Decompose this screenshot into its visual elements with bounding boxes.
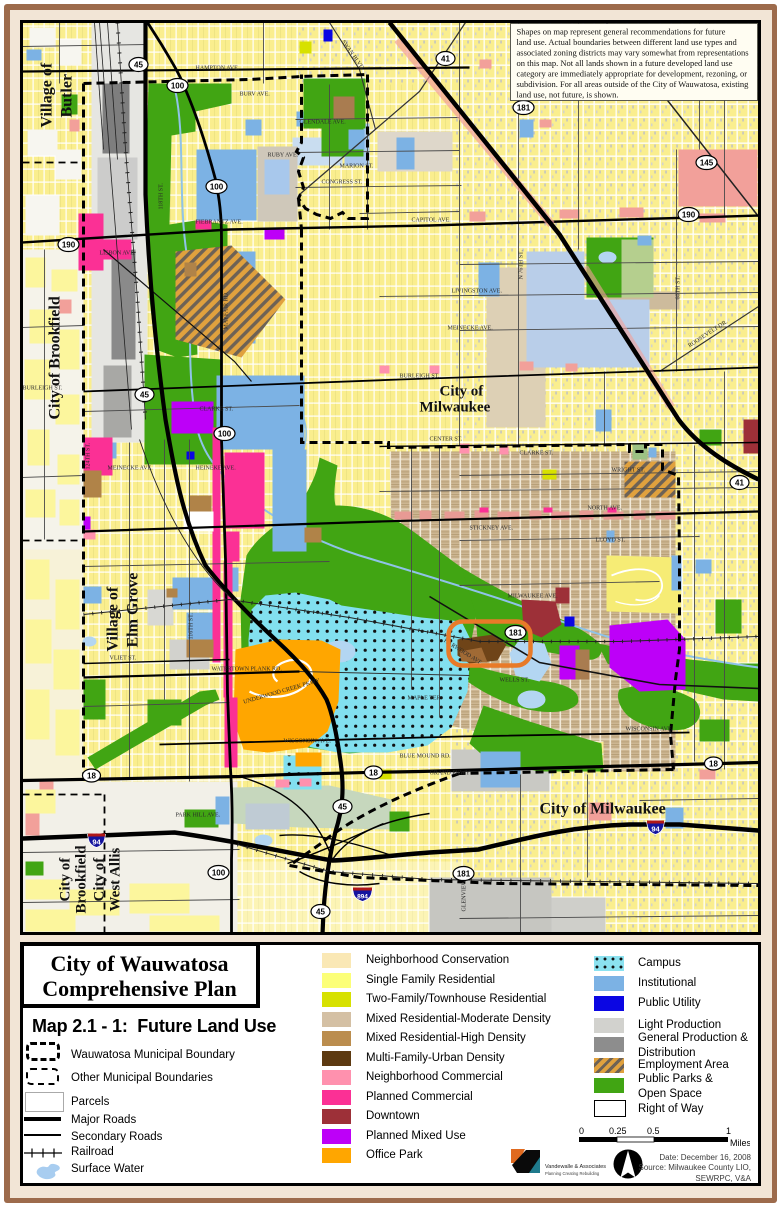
svg-text:GLENVIEW: GLENVIEW	[462, 880, 468, 912]
svg-text:MAYFAIR RD.: MAYFAIR RD.	[224, 291, 230, 330]
svg-text:GLENDALE AVE.: GLENDALE AVE.	[300, 120, 347, 126]
svg-text:STICKNEY AVE.: STICKNEY AVE.	[470, 526, 514, 532]
svg-text:100: 100	[212, 869, 226, 878]
svg-text:subdivision. For all areas out: subdivision. For all areas outside of th…	[517, 79, 750, 89]
svg-text:1: 1	[726, 1126, 731, 1136]
svg-text:45: 45	[140, 391, 149, 400]
svg-text:RUBY AVE.: RUBY AVE.	[268, 153, 299, 159]
svg-text:100: 100	[171, 82, 185, 91]
svg-text:Village of: Village of	[39, 62, 56, 127]
svg-text:HEINEKE AVE.: HEINEKE AVE.	[196, 466, 237, 472]
svg-text:City of: City of	[440, 384, 485, 400]
svg-text:45: 45	[134, 61, 143, 70]
svg-text:land use, not future, is shown: land use, not future, is shown.	[517, 90, 619, 100]
svg-text:CENTER ST.: CENTER ST.	[430, 437, 463, 443]
svg-text:West Allis: West Allis	[108, 848, 124, 912]
svg-text:LLOYD ST.: LLOYD ST.	[596, 538, 626, 544]
svg-text:MARION ST.: MARION ST.	[340, 164, 374, 170]
svg-text:NORTH AVE.: NORTH AVE.	[588, 506, 623, 512]
svg-text:CAPITOL AVE.: CAPITOL AVE.	[412, 218, 452, 224]
svg-text:WRIGHT ST.: WRIGHT ST.	[612, 468, 646, 474]
svg-text:MILWAUKEE AVE.: MILWAUKEE AVE.	[508, 594, 559, 600]
svg-text:0.25: 0.25	[609, 1126, 627, 1136]
svg-text:41: 41	[441, 55, 450, 64]
svg-text:100: 100	[218, 430, 232, 439]
svg-text:116TH ST.: 116TH ST.	[189, 613, 195, 640]
svg-text:124TH ST.: 124TH ST.	[86, 442, 92, 469]
svg-text:Miles: Miles	[730, 1138, 750, 1148]
svg-text:LISBON AVE.: LISBON AVE.	[100, 251, 136, 257]
svg-text:60TH ST.: 60TH ST.	[676, 275, 682, 299]
svg-text:18: 18	[709, 760, 718, 769]
svg-text:Elm Grove: Elm Grove	[125, 573, 142, 648]
svg-text:CONGRESS ST.: CONGRESS ST.	[322, 180, 363, 186]
svg-text:94: 94	[651, 825, 660, 834]
svg-text:Shapes on map represent genera: Shapes on map represent general recommen…	[517, 27, 726, 37]
svg-text:190: 190	[62, 241, 76, 250]
svg-text:181: 181	[509, 629, 523, 638]
svg-text:181: 181	[517, 104, 531, 113]
svg-text:18: 18	[87, 772, 96, 781]
svg-text:0.5: 0.5	[647, 1126, 660, 1136]
svg-text:City of: City of	[92, 857, 108, 902]
svg-text:100: 100	[210, 183, 224, 192]
svg-text:CLARKE ST.: CLARKE ST.	[520, 451, 554, 457]
svg-text:MEINECKE AVE.: MEINECKE AVE.	[108, 466, 154, 472]
svg-text:18: 18	[369, 769, 378, 778]
svg-text:190: 190	[682, 211, 696, 220]
svg-text:BURV AVE.: BURV AVE.	[240, 92, 271, 98]
svg-text:118TH ST.: 118TH ST.	[159, 183, 165, 210]
svg-text:Milwaukee: Milwaukee	[420, 400, 491, 416]
svg-text:894: 894	[357, 894, 368, 901]
svg-text:on this map. Not all lands sho: on this map. Not all lands shown in a fu…	[517, 58, 733, 68]
svg-text:VLIET ST.: VLIET ST.	[110, 656, 137, 662]
svg-text:Village of: Village of	[105, 586, 122, 651]
svg-text:45: 45	[338, 803, 347, 812]
svg-text:category are immediately appro: category are immediately appropriate for…	[517, 69, 748, 79]
svg-text:BURLEIGH ST.: BURLEIGH ST.	[400, 374, 440, 380]
svg-text:45: 45	[316, 908, 325, 917]
svg-text:land use. Actual boundaries be: land use. Actual boundaries between diff…	[517, 37, 738, 47]
svg-text:GRAND PKWY: GRAND PKWY	[430, 771, 471, 777]
svg-text:Butler: Butler	[59, 74, 76, 118]
svg-text:41: 41	[735, 479, 744, 488]
svg-text:0: 0	[579, 1126, 584, 1136]
svg-text:HAMPTON AVE.: HAMPTON AVE.	[196, 66, 240, 72]
svg-text:WATERTOWN PLANK RD.: WATERTOWN PLANK RD.	[212, 667, 283, 673]
svg-text:181: 181	[457, 870, 471, 879]
svg-text:WISCONSIN AVE.: WISCONSIN AVE.	[284, 739, 332, 745]
svg-text:FIEBRANTZ AVE.: FIEBRANTZ AVE.	[196, 220, 244, 226]
svg-text:WISCONSIN AVE.: WISCONSIN AVE.	[626, 727, 674, 733]
svg-text:BLUE MOUND RD.: BLUE MOUND RD.	[400, 754, 452, 760]
svg-text:City of Brookfield: City of Brookfield	[47, 296, 64, 419]
svg-text:MAPLE TER.: MAPLE TER.	[408, 696, 443, 702]
svg-text:94: 94	[92, 838, 101, 847]
svg-text:City of: City of	[58, 857, 74, 902]
svg-text:N 76TH ST.: N 76TH ST.	[519, 250, 525, 280]
svg-text:PARK HILL AVE.: PARK HILL AVE.	[176, 813, 221, 819]
svg-text:LIVINGSTON AVE.: LIVINGSTON AVE.	[452, 289, 503, 295]
svg-text:CLARKE ST.: CLARKE ST.	[200, 407, 234, 413]
svg-text:145: 145	[700, 159, 714, 168]
svg-text:MEINECKE AVE.: MEINECKE AVE.	[448, 326, 494, 332]
svg-text:associated zoning districts ma: associated zoning districts may vary som…	[517, 48, 749, 58]
svg-text:City of Milwaukee: City of Milwaukee	[540, 801, 666, 818]
svg-text:WELLS ST.: WELLS ST.	[500, 678, 530, 684]
svg-text:Brookfield: Brookfield	[74, 845, 90, 914]
